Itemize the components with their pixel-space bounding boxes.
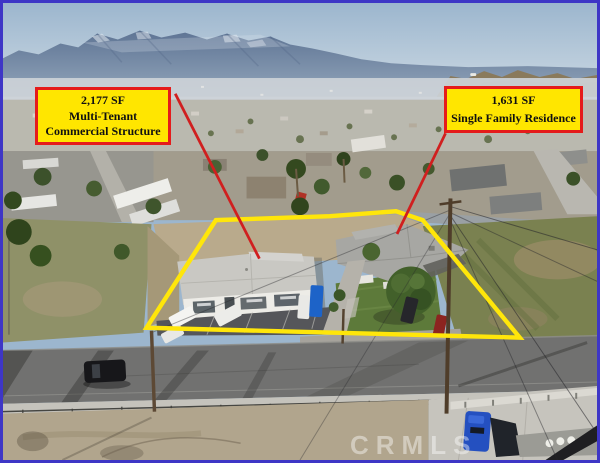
crmls-watermark: CRMLS (350, 430, 477, 461)
aerial-photo (3, 3, 597, 460)
label-residence: 1,631 SF Single Family Residence (444, 86, 583, 133)
label-commercial: 2,177 SF Multi-Tenant Commercial Structu… (35, 87, 171, 145)
black-suv (83, 359, 131, 389)
label-residence-desc: Single Family Residence (451, 112, 576, 125)
parked-van-white (297, 295, 311, 319)
photo-frame: CRMLS 2,177 SF Multi-Tenant Commercial S… (0, 0, 600, 463)
label-commercial-type: Multi-Tenant (69, 110, 137, 123)
label-commercial-sqft: 2,177 SF (81, 94, 125, 107)
label-commercial-desc: Commercial Structure (45, 125, 160, 138)
parked-car-blue (309, 285, 324, 317)
label-residence-sqft: 1,631 SF (491, 94, 535, 107)
hilltop-structure (470, 73, 476, 76)
utility-pole-small (343, 309, 344, 344)
